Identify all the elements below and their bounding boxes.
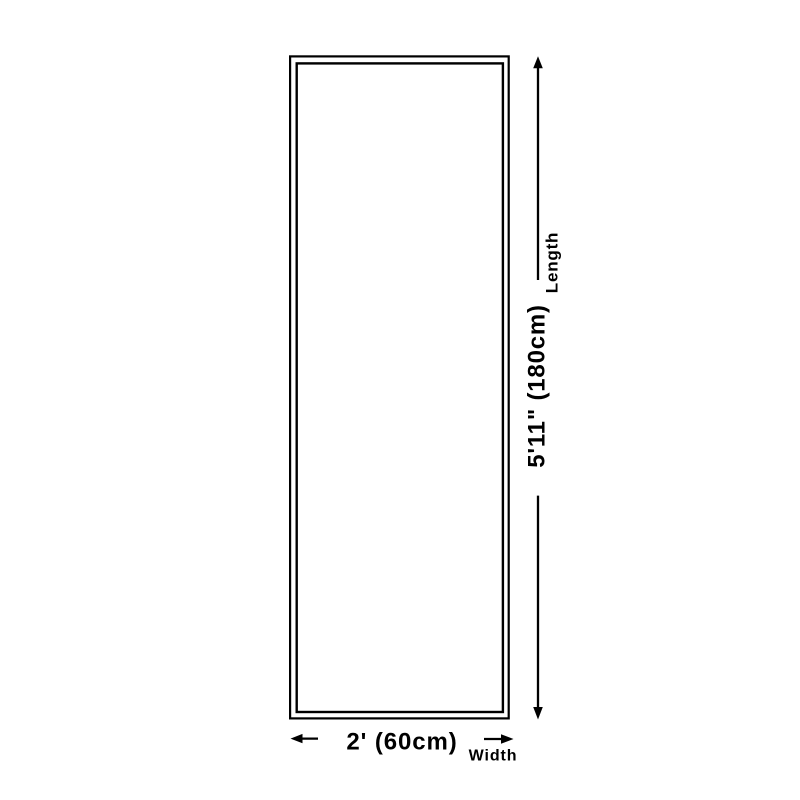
svg-text:Length: Length bbox=[542, 232, 561, 293]
svg-text:5'11" (180cm): 5'11" (180cm) bbox=[523, 304, 550, 468]
svg-text:2' (60cm): 2' (60cm) bbox=[346, 729, 457, 756]
svg-text:Width: Width bbox=[469, 748, 518, 765]
